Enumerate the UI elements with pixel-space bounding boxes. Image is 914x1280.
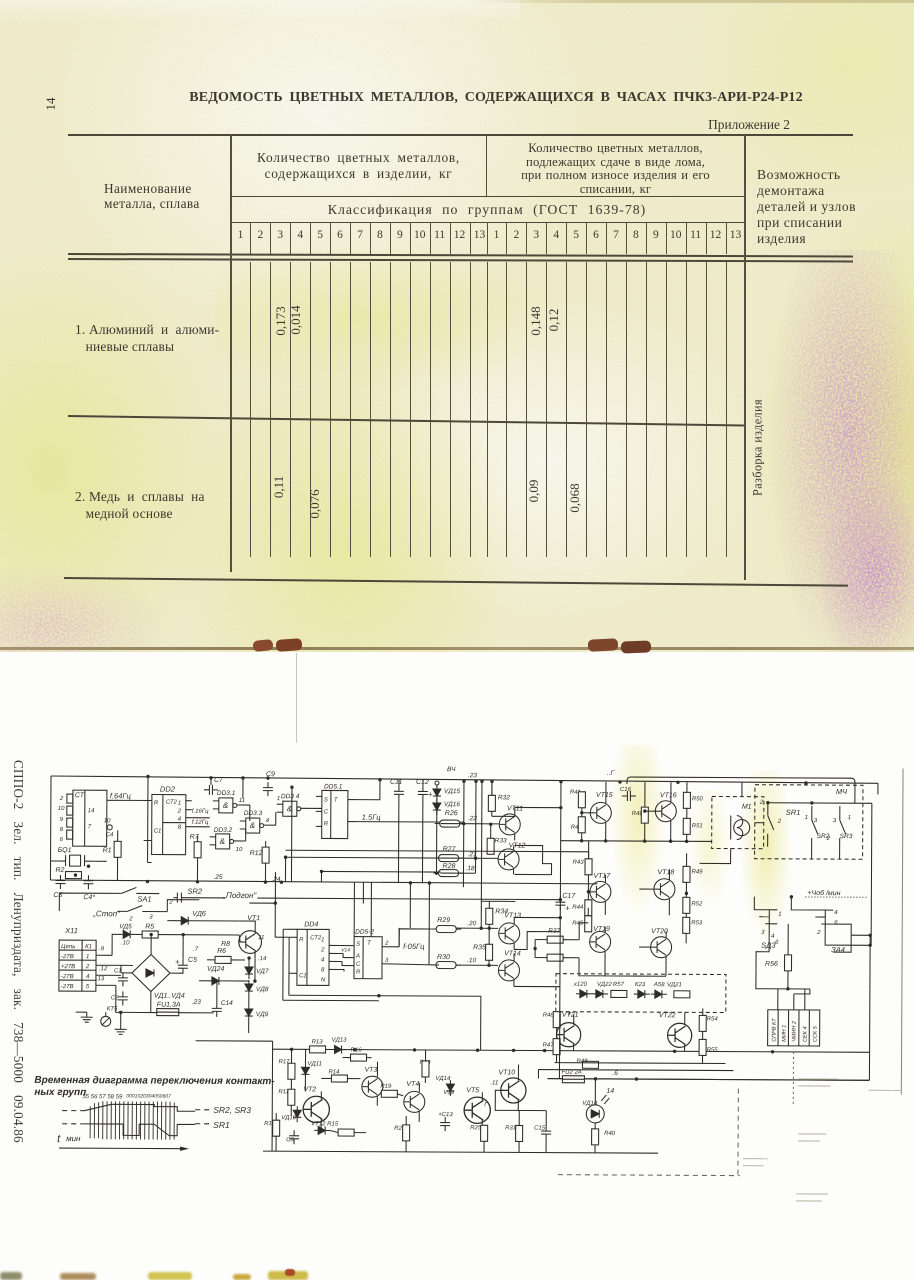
svg-text:ЧМИН 2: ЧМИН 2 bbox=[792, 1021, 798, 1042]
svg-text:2: 2 bbox=[320, 947, 325, 953]
svg-text:14: 14 bbox=[88, 808, 95, 814]
svg-text:2: 2 bbox=[816, 930, 821, 936]
svg-text:..Г: ..Г bbox=[607, 770, 615, 777]
svg-text:6: 6 bbox=[775, 940, 779, 946]
svg-text:4: 4 bbox=[321, 957, 325, 963]
svg-text:6: 6 bbox=[834, 920, 838, 926]
svg-text:VД13: VД13 bbox=[332, 1037, 348, 1043]
svg-text:„Стоп": „Стоп" bbox=[92, 909, 121, 918]
svg-text:2: 2 bbox=[759, 800, 764, 806]
svg-text:С11: С11 bbox=[390, 779, 402, 786]
svg-text:S: S bbox=[324, 797, 328, 803]
svg-text:VД16: VД16 bbox=[444, 801, 461, 808]
svg-text:2: 2 bbox=[168, 900, 173, 906]
svg-text:R33: R33 bbox=[495, 837, 507, 844]
svg-text:ЗА4: ЗА4 bbox=[831, 945, 845, 954]
svg-text:DD2: DD2 bbox=[160, 785, 176, 794]
svg-text:VТ16: VТ16 bbox=[660, 792, 677, 799]
svg-text:DD4: DD4 bbox=[304, 921, 318, 928]
svg-text:ных групп: ных групп bbox=[34, 1087, 86, 1098]
svg-text:DD3.1: DD3.1 bbox=[217, 790, 236, 797]
svg-text:2: 2 bbox=[177, 809, 182, 815]
svg-text:.13: .13 bbox=[96, 976, 105, 982]
svg-text:М1: М1 bbox=[742, 804, 752, 811]
svg-text:VТ18: VТ18 bbox=[657, 869, 674, 876]
svg-text:+27В: +27В bbox=[61, 964, 75, 970]
svg-text:R56: R56 bbox=[765, 961, 778, 968]
svg-text:R12: R12 bbox=[250, 850, 263, 857]
svg-text:+Чоб /мин: +Чоб /мин bbox=[807, 889, 840, 897]
svg-text:11: 11 bbox=[239, 798, 245, 804]
svg-text:N: N bbox=[321, 977, 326, 983]
svg-text:R1: R1 bbox=[103, 847, 112, 854]
svg-text:DD5.1: DD5.1 bbox=[324, 783, 343, 790]
svg-text:R32: R32 bbox=[498, 794, 510, 801]
svg-text:VТ10: VТ10 bbox=[498, 1069, 515, 1076]
svg-text:SR3: SR3 bbox=[840, 833, 853, 840]
svg-text:T: T bbox=[334, 797, 339, 803]
svg-text:-27В: -27В bbox=[61, 954, 74, 960]
svg-text:0001020304050607: 0001020304050607 bbox=[126, 1093, 171, 1099]
svg-text:8: 8 bbox=[60, 827, 64, 833]
svg-text:СПРВ КТ: СПРВ КТ bbox=[772, 1018, 778, 1042]
svg-text:2: 2 bbox=[59, 796, 64, 802]
svg-text:СТ2: СТ2 bbox=[166, 800, 178, 806]
svg-text:1: 1 bbox=[321, 937, 324, 943]
svg-text:С9: С9 bbox=[266, 771, 275, 778]
svg-text:f.16Гц: f.16Гц bbox=[192, 809, 209, 815]
svg-text:VД10: VД10 bbox=[281, 1115, 297, 1121]
svg-text:С4*: С4* bbox=[83, 894, 95, 901]
svg-text:DD3.3: DD3.3 bbox=[244, 810, 263, 817]
svg-text:VТ4: VТ4 bbox=[406, 1081, 419, 1088]
svg-text:R35: R35 bbox=[473, 944, 486, 951]
svg-text:-27В: -27В bbox=[61, 974, 74, 980]
svg-text:R26: R26 bbox=[445, 810, 458, 817]
svg-text:FU2 2А: FU2 2А bbox=[561, 1070, 581, 1076]
svg-text:R53: R53 bbox=[691, 920, 703, 926]
svg-text:.24: .24 bbox=[271, 876, 280, 883]
svg-text:R52: R52 bbox=[691, 901, 703, 907]
svg-text:R16: R16 bbox=[351, 1048, 363, 1054]
svg-text:К23: К23 bbox=[635, 982, 646, 988]
svg-text:SR1: SR1 bbox=[786, 808, 801, 817]
svg-text:Х11: Х11 bbox=[64, 926, 78, 935]
svg-text:SR1: SR1 bbox=[213, 1120, 230, 1130]
svg-text:2: 2 bbox=[777, 819, 782, 825]
svg-text:ССК 5: ССК 5 bbox=[813, 1025, 819, 1042]
svg-text:VД11: VД11 bbox=[307, 1061, 321, 1067]
svg-text:R31: R31 bbox=[505, 1125, 516, 1131]
svg-text:VД21: VД21 bbox=[667, 982, 682, 988]
svg-text:VД22: VД22 bbox=[597, 982, 613, 988]
svg-text:3: 3 bbox=[814, 818, 818, 824]
svg-text:2: 2 bbox=[384, 941, 389, 947]
svg-text:6: 6 bbox=[60, 837, 64, 843]
svg-text:.12: .12 bbox=[99, 966, 108, 972]
svg-text:R25: R25 bbox=[470, 1125, 482, 1131]
svg-text:R43: R43 bbox=[573, 860, 585, 866]
svg-text:С1: С1 bbox=[299, 973, 307, 979]
svg-text:f-05Гц: f-05Гц bbox=[403, 942, 425, 951]
svg-text:VД14: VД14 bbox=[435, 1076, 451, 1082]
svg-text:.23: .23 bbox=[192, 999, 201, 1006]
svg-text:1: 1 bbox=[86, 954, 89, 960]
svg-text:VД24: VД24 bbox=[207, 966, 225, 973]
svg-text:С14: С14 bbox=[221, 1000, 233, 1007]
svg-text:.22: .22 bbox=[468, 815, 477, 822]
svg-text:4: 4 bbox=[178, 817, 182, 823]
svg-text:.14: .14 bbox=[258, 956, 267, 962]
svg-text:VТ15: VТ15 bbox=[596, 792, 613, 799]
svg-text:4: 4 bbox=[834, 910, 838, 916]
svg-text:R7: R7 bbox=[190, 834, 200, 841]
svg-text:11: 11 bbox=[258, 935, 264, 941]
svg-text:-27В: -27В bbox=[61, 984, 74, 990]
svg-text:+: + bbox=[428, 790, 433, 799]
svg-text:DD3.2: DD3.2 bbox=[214, 827, 233, 834]
svg-text:f.64Гц: f.64Гц bbox=[110, 791, 132, 800]
svg-text:R57: R57 bbox=[613, 982, 625, 988]
svg-text:4: 4 bbox=[266, 818, 270, 824]
svg-text:С: С bbox=[356, 962, 361, 968]
svg-text:DD3 4: DD3 4 bbox=[281, 793, 300, 800]
svg-text:S: S bbox=[356, 942, 360, 948]
svg-text:VД8: VД8 bbox=[256, 986, 269, 993]
svg-text:8: 8 bbox=[178, 825, 182, 831]
svg-text:С7: С7 bbox=[214, 777, 224, 784]
svg-text:3: 3 bbox=[761, 930, 765, 936]
svg-text:V19: V19 bbox=[443, 1090, 454, 1096]
svg-text:С17: С17 bbox=[562, 893, 576, 900]
svg-text:R8: R8 bbox=[221, 941, 230, 948]
svg-text:10: 10 bbox=[236, 847, 243, 853]
svg-text:+: + bbox=[565, 904, 570, 913]
svg-text:Т: Т bbox=[367, 941, 372, 947]
svg-text:R51: R51 bbox=[692, 823, 703, 829]
svg-text:55 56 57 58 59: 55 56 57 58 59 bbox=[82, 1094, 123, 1100]
svg-text:VТ20: VТ20 bbox=[651, 928, 668, 935]
svg-text:R13: R13 bbox=[312, 1039, 324, 1045]
svg-text:.25: .25 bbox=[213, 874, 222, 881]
svg-text:.10: .10 bbox=[467, 957, 476, 964]
svg-text:SА1: SА1 bbox=[137, 894, 151, 903]
svg-text:мин: мин bbox=[66, 1134, 81, 1143]
svg-text:1: 1 bbox=[805, 815, 808, 821]
svg-text:3: 3 bbox=[149, 915, 153, 921]
svg-text:VД5: VД5 bbox=[119, 923, 132, 930]
svg-text:А58: А58 bbox=[653, 982, 665, 988]
svg-text:1: 1 bbox=[778, 912, 781, 918]
svg-text:ВЧ: ВЧ bbox=[447, 766, 456, 773]
svg-text:f.12Гц: f.12Гц bbox=[192, 820, 209, 826]
svg-text:К1: К1 bbox=[85, 944, 92, 950]
svg-text:R47: R47 bbox=[543, 1043, 555, 1049]
svg-text:VД1..VД4: VД1..VД4 bbox=[154, 993, 185, 1000]
svg-text:14: 14 bbox=[606, 1088, 614, 1095]
svg-text:VД6: VД6 bbox=[192, 911, 206, 918]
svg-text:х120: х120 bbox=[573, 982, 588, 988]
svg-text:А: А bbox=[355, 954, 360, 960]
svg-text:VТ5: VТ5 bbox=[466, 1087, 479, 1094]
svg-text:R30: R30 bbox=[437, 954, 450, 961]
svg-text:R50: R50 bbox=[692, 796, 704, 802]
svg-text:1: 1 bbox=[848, 815, 851, 821]
svg-text:R45: R45 bbox=[572, 921, 584, 927]
svg-text:R44: R44 bbox=[572, 905, 584, 911]
svg-text:VД15: VД15 bbox=[444, 788, 461, 795]
svg-text:С1: С1 bbox=[154, 829, 162, 835]
svg-text:R55: R55 bbox=[707, 1047, 719, 1053]
svg-text:R2: R2 bbox=[55, 867, 64, 874]
svg-text:R37: R37 bbox=[548, 928, 560, 935]
svg-text:С2: С2 bbox=[111, 995, 119, 1001]
svg-text:С6: С6 bbox=[286, 1137, 294, 1143]
svg-text:2: 2 bbox=[85, 964, 90, 970]
svg-text:МЧ: МЧ bbox=[836, 787, 848, 796]
svg-text:R19: R19 bbox=[380, 1084, 392, 1090]
svg-text:R49: R49 bbox=[691, 869, 703, 875]
svg-text:С4: С4 bbox=[106, 832, 114, 838]
svg-text:R: R bbox=[324, 821, 329, 827]
svg-text:VТ14: VТ14 bbox=[504, 950, 521, 957]
svg-text:R5: R5 bbox=[145, 923, 154, 930]
svg-text:R46: R46 bbox=[543, 1013, 555, 1019]
svg-text:.9: .9 bbox=[99, 946, 105, 952]
svg-text:Цепь: Цепь bbox=[61, 944, 75, 950]
svg-text:8: 8 bbox=[321, 967, 325, 973]
svg-text:9: 9 bbox=[60, 817, 64, 823]
svg-text:SR2: SR2 bbox=[187, 887, 202, 896]
svg-text:1: 1 bbox=[178, 801, 181, 807]
svg-text:+С13: +С13 bbox=[438, 1112, 453, 1118]
svg-text:R54: R54 bbox=[707, 1016, 719, 1022]
svg-text:2: 2 bbox=[128, 916, 133, 922]
svg-text:R27: R27 bbox=[443, 846, 457, 853]
svg-text:.10: .10 bbox=[121, 940, 130, 946]
svg-text:SR2, SR3: SR2, SR3 bbox=[213, 1105, 251, 1115]
svg-text:.6: .6 bbox=[612, 1070, 618, 1077]
svg-text:.18: .18 bbox=[466, 865, 475, 872]
svg-text:VТ13: VТ13 bbox=[504, 912, 521, 919]
svg-text:СТ: СТ bbox=[75, 792, 85, 799]
svg-text:R6: R6 bbox=[217, 948, 226, 955]
svg-text:.7: .7 bbox=[193, 947, 199, 953]
svg-text:VТ22: VТ22 bbox=[659, 1012, 676, 1019]
svg-text:R: R bbox=[154, 801, 159, 807]
svg-text:R40: R40 bbox=[604, 1131, 616, 1137]
svg-text:3: 3 bbox=[833, 818, 837, 824]
svg-text:1.5Гц: 1.5Гц bbox=[362, 813, 382, 822]
svg-text:БQ1: БQ1 bbox=[58, 847, 72, 854]
svg-text:.23: .23 bbox=[468, 772, 477, 779]
svg-text:2: 2 bbox=[826, 836, 831, 842]
svg-text:С16: С16 bbox=[620, 787, 632, 793]
svg-text:R: R bbox=[356, 970, 361, 976]
svg-text:.20: .20 bbox=[467, 920, 476, 927]
svg-text:C: C bbox=[324, 809, 329, 815]
svg-text:10: 10 bbox=[58, 806, 65, 812]
svg-text:R29: R29 bbox=[437, 917, 450, 924]
svg-text:V14: V14 bbox=[341, 948, 350, 954]
svg-text:VТ2: VТ2 bbox=[303, 1086, 316, 1093]
svg-text:.11: .11 bbox=[490, 1080, 498, 1086]
svg-text:VТ3: VТ3 bbox=[364, 1067, 377, 1074]
svg-text:С5: С5 bbox=[188, 957, 197, 964]
svg-text:„Подгон": „Подгон" bbox=[222, 891, 257, 900]
svg-text:VД7: VД7 bbox=[256, 968, 269, 975]
svg-text:VД9: VД9 bbox=[256, 1011, 269, 1018]
svg-text:FU1,3А: FU1,3А bbox=[157, 1002, 181, 1009]
svg-text:1: 1 bbox=[277, 796, 280, 802]
svg-text:7: 7 bbox=[88, 824, 92, 830]
svg-text:t: t bbox=[57, 1133, 61, 1145]
svg-text:10: 10 bbox=[104, 818, 111, 824]
svg-text:Временная диаграмма переключ: Временная диаграмма переключения контакт… bbox=[34, 1075, 275, 1087]
svg-text:3: 3 bbox=[385, 958, 389, 964]
svg-text:СЕК 4: СЕК 4 bbox=[803, 1026, 809, 1041]
svg-text:R: R bbox=[299, 937, 304, 943]
svg-text:VТ17: VТ17 bbox=[593, 873, 611, 880]
svg-text:МИН 1: МИН 1 bbox=[782, 1025, 788, 1042]
svg-text:+: + bbox=[175, 958, 180, 967]
